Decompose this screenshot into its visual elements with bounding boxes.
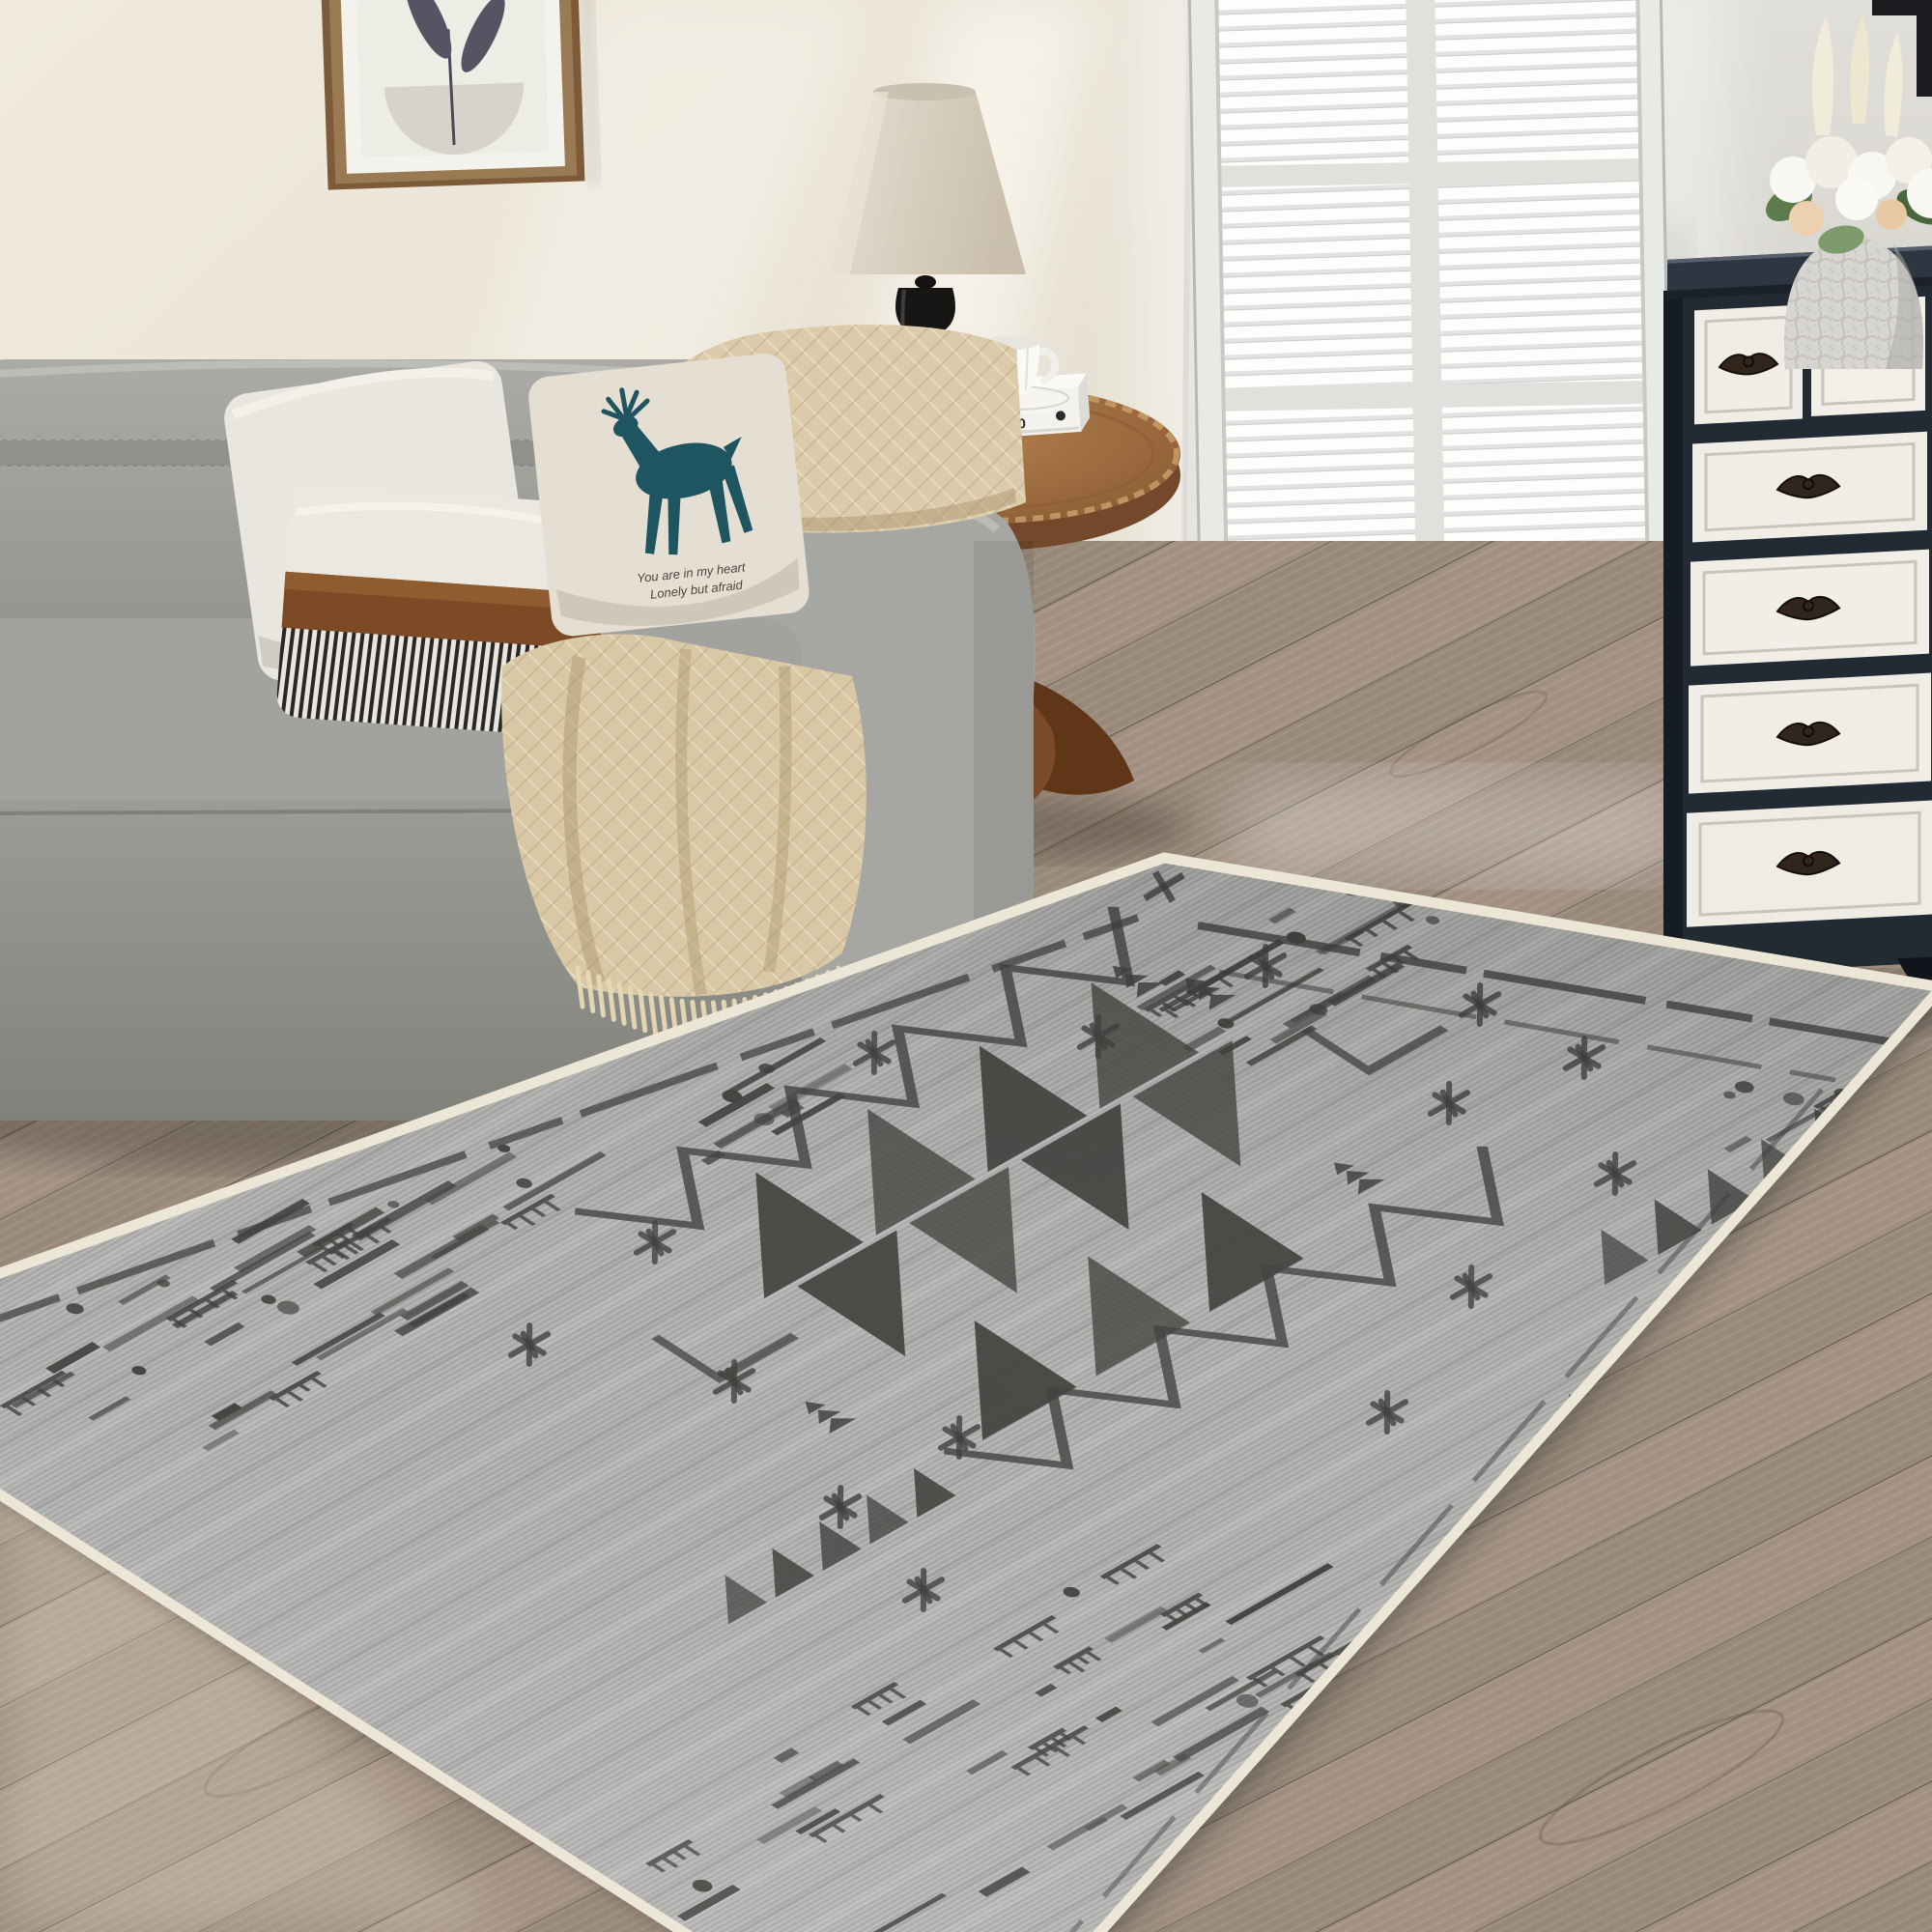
deer-pillow: You are in my heart Lonely but afraid	[526, 352, 811, 639]
window-light-pool	[1236, 773, 1681, 879]
living-room-photo: DESIGN HOTELS YEAR BOOK20	[0, 0, 1932, 1932]
scene-canvas: DESIGN HOTELS YEAR BOOK20	[0, 0, 1932, 1932]
framed-botanical-art	[321, 0, 601, 193]
dresser-side	[1663, 290, 1683, 975]
